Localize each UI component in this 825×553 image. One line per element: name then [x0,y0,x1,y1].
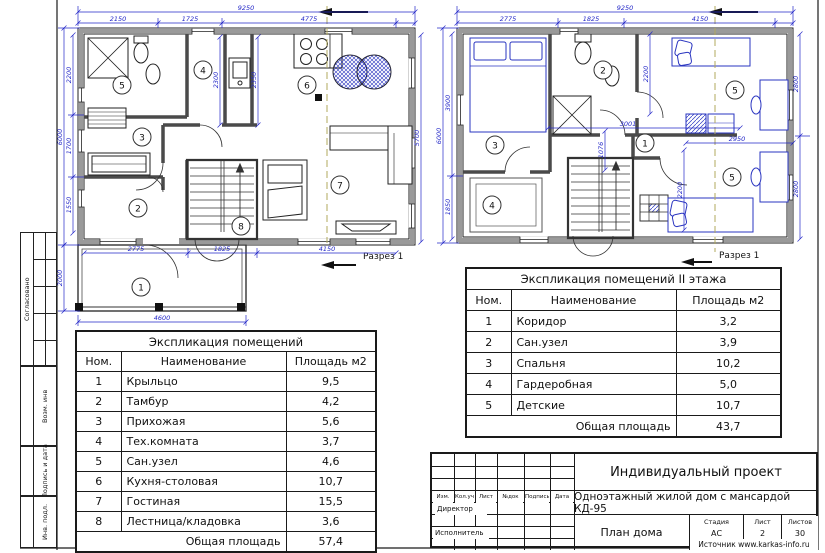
sofa-icon [330,126,394,150]
table-row: 4Тех.комната3,7 [76,432,376,452]
room-number: 2 [600,67,606,77]
dim-label: 2775 [128,245,145,253]
table-row: 3Спальня10,2 [466,353,781,374]
room-number: 1 [642,140,648,150]
dim-label: 1825 [583,15,600,23]
col-header: Ном. [76,352,121,372]
dim-label: 2300 [212,72,220,89]
stamp-col-sign: Подпись [525,491,549,503]
dim-label: 4775 [301,15,318,23]
margin-box-inv: Инв. подл. [20,496,57,548]
table-row: 2Тамбур4,2 [76,392,376,412]
room-number: 1 [138,284,144,294]
col-header: Наименование [121,352,286,372]
blueprint-sheet: { "margin": {"fields": ["Согласовано", "… [0,0,825,550]
room-number: 3 [139,134,145,144]
table-row: 7Гостиная15,5 [76,492,376,512]
porch [75,245,246,311]
total-label: Общая площадь [76,532,286,553]
stamp-executor: Исполнитель [433,527,489,539]
project-name: Индивидуальный проект [574,454,818,491]
dim-label: 1825 [214,245,231,253]
table-row: 6Кухня-столовая10,7 [76,472,376,492]
col-header: Наименование [511,290,676,311]
dim-label: 9250 [238,4,255,12]
dim-label: 4150 [319,245,336,253]
margin-label: Согласовано [21,233,33,365]
drawing-name: План дома [574,515,690,550]
stamp-col-doc: №док [498,491,523,503]
dim-label: 2800 [792,76,800,93]
dim-label: 2150 [110,15,127,23]
room-number: 8 [238,223,244,233]
title-block-grid: Изм. Кол.уч Лист №док Подпись Дата Дирек… [432,454,575,550]
col-header: Площадь м2 [676,290,781,311]
stamp-col-date: Дата [551,491,573,503]
table-row: 3Прихожая5,6 [76,412,376,432]
total-value: 43,7 [676,416,781,438]
dim-label: 2775 [500,15,517,23]
title-block: Изм. Кол.уч Лист №док Подпись Дата Дирек… [430,452,818,548]
dim-label: 2950 [729,135,746,143]
stamp-director: Директор [435,503,487,515]
room-number: 6 [304,82,310,92]
floor-plan-1: Разрез 1 9250 2150 1725 4775 6000 2200 1… [56,4,424,326]
desk-icon [760,152,788,202]
sheets-label: Листов [782,516,818,528]
toilet-icon [575,34,591,42]
dim-label: 9250 [617,4,634,12]
sheet-label: Лист [744,516,781,528]
margin-label: Инв. подл. [34,497,56,547]
margin-box-signdate: Подпись и дата [20,446,57,496]
dim-label: 5700 [413,130,421,147]
table-total-row: Общая площадь 43,7 [466,416,781,438]
margin-box-approved: Согласовано [20,232,57,366]
dim-label: 2200 [65,67,73,84]
col-header: Ном. [466,290,511,311]
wardrobe-icon [686,114,706,133]
room-number: 7 [337,182,343,192]
stage-sheet-box: Стадия Лист Листов АС 2 30 Источник www.… [690,515,818,550]
dim-label: 2800 [792,181,800,198]
object-name: Одноэтажный жилой дом с мансардой КД-95 [574,491,818,515]
sink-icon [146,64,160,84]
table-row: 5Детские10,7 [466,395,781,416]
post-marker [315,94,322,101]
stamp-col-list: Лист [476,491,496,503]
room-number: 2 [135,205,141,215]
margin-box-vzam: Возм. инв [20,366,57,446]
desk-icon [760,80,788,130]
table-title: Экспликация помещений II этажа [466,268,781,290]
dim-label: 2200 [642,66,650,83]
margin-label: Возм. инв [34,367,56,445]
dim-label: 4600 [154,314,171,322]
chimney-icon [640,195,668,221]
dim-label: 1550 [65,197,73,214]
dim-label: 4150 [692,15,709,23]
washer-icon [88,108,126,128]
dim-label: 1850 [444,199,452,216]
dim-label: 3900 [444,95,452,112]
margin-label: Подпись и дата [34,447,56,495]
room-number: 5 [729,174,735,184]
stamp-col-koluch: Кол.уч [455,491,474,503]
table-total-row: Общая площадь 57,4 [76,532,376,553]
room-schedule-floor1: Экспликация помещений Ном. Наименование … [75,330,377,553]
col-header: Площадь м2 [286,352,376,372]
toilet-icon [134,36,148,43]
tv-stand-icon [336,221,396,234]
section-label: Разрез 1 [363,252,403,262]
table-row: 5Сан.узел4,6 [76,452,376,472]
room-number: 5 [119,82,125,92]
dim-label: 6000 [56,129,64,146]
table-title: Экспликация помещений [76,331,376,352]
dim-label: 2200 [676,182,684,199]
floor-plan-2: Разрез 1 9250 2775 1825 4150 6000 3900 1… [435,4,810,266]
dim-label: 2350 [250,72,258,89]
stage-label: Стадия [690,516,743,528]
dim-label: 1076 [597,142,605,159]
room-schedule-floor2: Экспликация помещений II этажа Ном. Наим… [465,267,782,438]
table-row: 2Сан.узел3,9 [466,332,781,353]
room-number: 5 [732,87,738,97]
room-number: 4 [489,202,495,212]
dim-label: 6000 [435,128,443,145]
table-row: 8Лестница/кладовка3,6 [76,512,376,532]
total-value: 57,4 [286,532,376,553]
table-row: 1Коридор3,2 [466,311,781,332]
dim-label: 2000 [56,270,64,287]
section-label: Разрез 1 [719,251,759,261]
room-number: 4 [200,67,206,77]
total-label: Общая площадь [466,416,676,438]
room-number: 3 [492,142,498,152]
table-row: 1Крыльцо9,5 [76,372,376,392]
dim-label: 1725 [182,15,199,23]
dim-label: 3001 [620,120,637,128]
stamp-col-izm: Изм. [433,491,453,503]
table-row: 4Гардеробная5,0 [466,374,781,395]
dim-label: 1700 [65,138,73,155]
source-note: Источник www.karkas-info.ru [690,539,818,551]
